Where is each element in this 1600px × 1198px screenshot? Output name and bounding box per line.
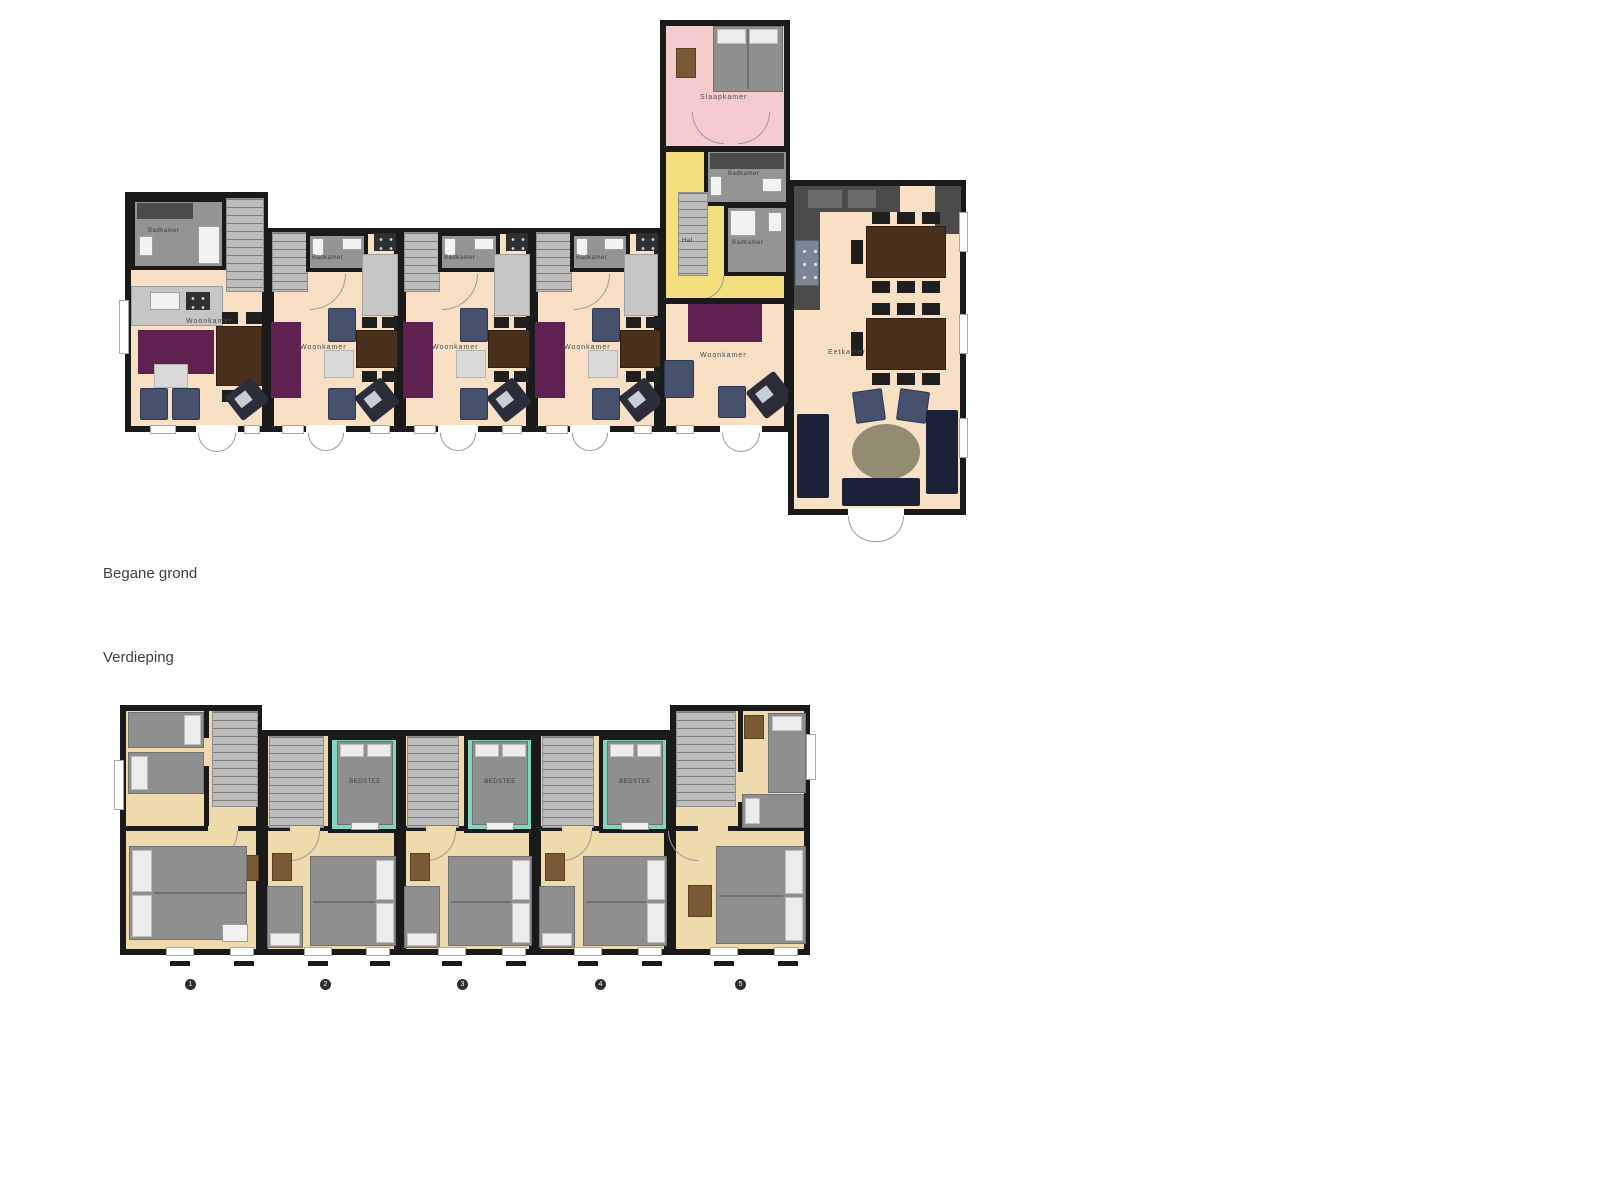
window — [638, 947, 662, 956]
pillow-icon — [475, 744, 499, 757]
double-bed-group-icon — [716, 846, 806, 944]
bed-divider — [451, 901, 511, 903]
window — [502, 947, 526, 956]
bench-icon — [222, 924, 248, 942]
window-sill-dash — [506, 961, 526, 966]
pillow-icon — [131, 756, 148, 790]
window — [438, 947, 466, 956]
room-label: BEDSTEE — [476, 779, 524, 785]
pillow-icon — [132, 850, 152, 892]
window-sill-dash — [170, 961, 190, 966]
pillow-icon — [785, 897, 803, 941]
staircase-icon — [542, 736, 594, 828]
unit-number-badge: 4 — [595, 979, 606, 990]
window — [114, 760, 124, 810]
single-bed-icon — [404, 886, 440, 948]
window — [230, 947, 254, 956]
window — [166, 947, 194, 956]
bed-divider — [154, 892, 246, 894]
pillow-icon — [647, 903, 665, 943]
pillow-icon — [647, 860, 665, 900]
staircase-icon — [676, 711, 736, 807]
staircase-icon — [269, 736, 324, 828]
bed-step-icon — [486, 822, 514, 830]
single-bed-icon — [267, 886, 303, 948]
pillow-icon — [745, 798, 760, 824]
pillow-icon — [637, 744, 661, 757]
bed-step-icon — [621, 822, 649, 830]
window-sill-dash — [308, 961, 328, 966]
upper-floor-plan: BEDSTEE BEDSTEE BEDSTEE — [0, 0, 1600, 1198]
window-sill-dash — [778, 961, 798, 966]
window-sill-dash — [642, 961, 662, 966]
single-bed-icon — [128, 752, 204, 794]
room-label: BEDSTEE — [341, 779, 389, 785]
pillow-icon — [340, 744, 364, 757]
staircase-icon — [212, 711, 258, 807]
pillow-icon — [502, 744, 526, 757]
window — [366, 947, 390, 956]
bed-step-icon — [351, 822, 379, 830]
window — [574, 947, 602, 956]
unit-number-badge: 2 — [320, 979, 331, 990]
pillow-icon — [132, 895, 152, 937]
double-bed-group-icon — [448, 856, 532, 946]
pillow-icon — [512, 903, 530, 943]
nightstand-icon — [744, 715, 764, 739]
unit-number-badge: 3 — [457, 979, 468, 990]
room-label: BEDSTEE — [611, 779, 659, 785]
single-bed-icon — [742, 794, 804, 828]
pillow-icon — [772, 716, 802, 731]
window — [304, 947, 332, 956]
pillow-icon — [407, 933, 437, 946]
single-bed-icon — [539, 886, 575, 948]
dresser-icon — [272, 853, 292, 881]
interior-wall — [204, 711, 209, 829]
window — [774, 947, 798, 956]
floorplan-page: Slaapkamer Badkamer Badkamer Hal Badkame… — [0, 0, 1600, 1198]
door-opening — [698, 826, 728, 831]
dresser-icon — [688, 885, 712, 917]
dresser-icon — [545, 853, 565, 881]
window — [710, 947, 738, 956]
pillow-icon — [376, 903, 394, 943]
pillow-icon — [376, 860, 394, 900]
pillow-icon — [184, 715, 201, 745]
pillow-icon — [367, 744, 391, 757]
pillow-icon — [512, 860, 530, 900]
bed-divider — [719, 895, 783, 897]
pillow-icon — [610, 744, 634, 757]
dresser-icon — [410, 853, 430, 881]
pillow-icon — [542, 933, 572, 946]
door-opening — [204, 738, 209, 766]
unit-number-badge: 5 — [735, 979, 746, 990]
double-bed-group-icon — [583, 856, 667, 946]
bed-divider — [313, 901, 375, 903]
pillow-icon — [785, 850, 803, 894]
window-sill-dash — [234, 961, 254, 966]
double-bed-group-icon — [310, 856, 396, 946]
window-sill-dash — [578, 961, 598, 966]
bed-divider — [586, 901, 646, 903]
window — [806, 734, 816, 780]
window-sill-dash — [442, 961, 462, 966]
single-bed-icon — [768, 713, 806, 793]
window-sill-dash — [370, 961, 390, 966]
pillow-icon — [270, 933, 300, 946]
staircase-icon — [407, 736, 459, 828]
window-sill-dash — [714, 961, 734, 966]
unit-number-badge: 1 — [185, 979, 196, 990]
single-bed-icon — [128, 712, 204, 748]
